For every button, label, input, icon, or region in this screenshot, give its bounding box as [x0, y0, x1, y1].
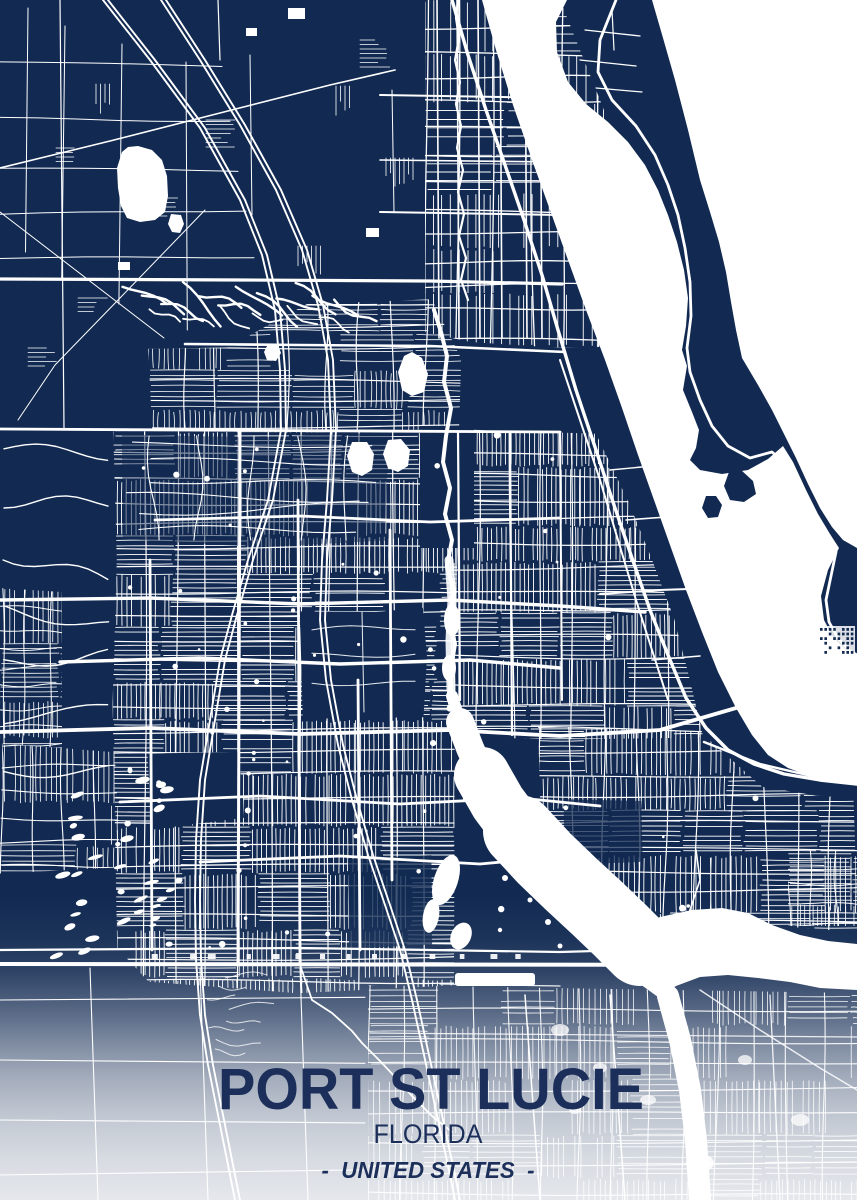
svg-text:- UNITED STATES -: - UNITED STATES -: [322, 1157, 535, 1183]
svg-text:FLORIDA: FLORIDA: [374, 1119, 483, 1149]
svg-text:PORT ST LUCIE: PORT ST LUCIE: [218, 1057, 644, 1122]
